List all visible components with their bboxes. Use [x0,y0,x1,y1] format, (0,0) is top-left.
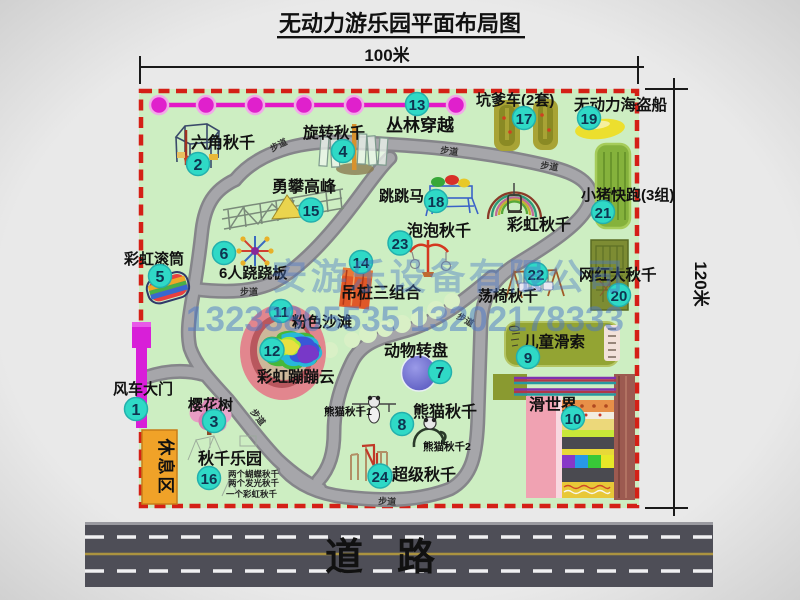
svg-text:路: 路 [397,537,436,579]
svg-text:无动力游乐园平面布局图: 无动力游乐园平面布局图 [279,11,521,36]
svg-text:17: 17 [516,111,533,128]
svg-text:熊猫秋千1: 熊猫秋千1 [324,405,372,418]
svg-text:步道: 步道 [378,495,397,507]
svg-text:13233805535 13202178333: 13233805535 13202178333 [186,300,624,339]
svg-text:7: 7 [436,365,445,382]
svg-text:道: 道 [325,537,363,579]
svg-text:21: 21 [595,205,612,222]
svg-text:12: 12 [264,343,281,360]
svg-text:步道: 步道 [440,144,459,157]
svg-text:120米: 120米 [691,261,711,307]
svg-text:15: 15 [303,203,320,220]
svg-text:泡泡秋千: 泡泡秋千 [407,221,471,240]
svg-text:彩虹滚筒: 彩虹滚筒 [123,250,184,268]
svg-text:3: 3 [210,414,219,431]
svg-text:休息区: 休息区 [156,438,176,496]
svg-text:跳跳马: 跳跳马 [379,187,424,205]
svg-text:19: 19 [581,111,598,128]
svg-text:彩虹秋千: 彩虹秋千 [506,215,571,234]
svg-text:小猪快跑(3组): 小猪快跑(3组) [581,186,674,204]
svg-text:坑爹车(2套): 坑爹车(2套) [476,91,554,109]
svg-text:动物转盘: 动物转盘 [384,341,448,360]
svg-text:风车大门: 风车大门 [113,380,173,398]
svg-text:熊猫秋千: 熊猫秋千 [413,402,477,421]
svg-text:两个发光秋千: 两个发光秋千 [228,478,280,488]
svg-text:熊猫秋千2: 熊猫秋千2 [423,440,471,453]
svg-text:勇攀高峰: 勇攀高峰 [272,177,337,196]
svg-text:安游乐设备有限公司: 安游乐设备有限公司 [271,256,627,297]
svg-text:旋转秋千: 旋转秋千 [302,123,366,142]
svg-text:24: 24 [372,469,389,486]
svg-text:10: 10 [565,411,582,428]
svg-text:13: 13 [409,97,426,114]
svg-text:2: 2 [194,157,203,174]
svg-text:六角秋千: 六角秋千 [191,133,255,152]
svg-text:9: 9 [524,350,532,367]
svg-text:18: 18 [428,194,445,211]
svg-text:8: 8 [398,417,407,434]
svg-text:6: 6 [220,246,229,263]
svg-text:100米: 100米 [364,45,410,65]
svg-text:1: 1 [132,402,141,419]
svg-text:16: 16 [201,471,218,488]
svg-text:4: 4 [339,144,348,161]
svg-text:彩虹蹦蹦云: 彩虹蹦蹦云 [256,367,335,386]
svg-text:秋千乐园: 秋千乐园 [198,449,262,468]
svg-text:丛林穿越: 丛林穿越 [386,115,455,135]
svg-text:5: 5 [156,269,165,286]
svg-text:步道: 步道 [240,286,258,297]
svg-text:一个彩虹秋千: 一个彩虹秋千 [226,489,278,499]
svg-text:23: 23 [392,236,409,253]
svg-text:超级秋千: 超级秋千 [391,465,456,484]
